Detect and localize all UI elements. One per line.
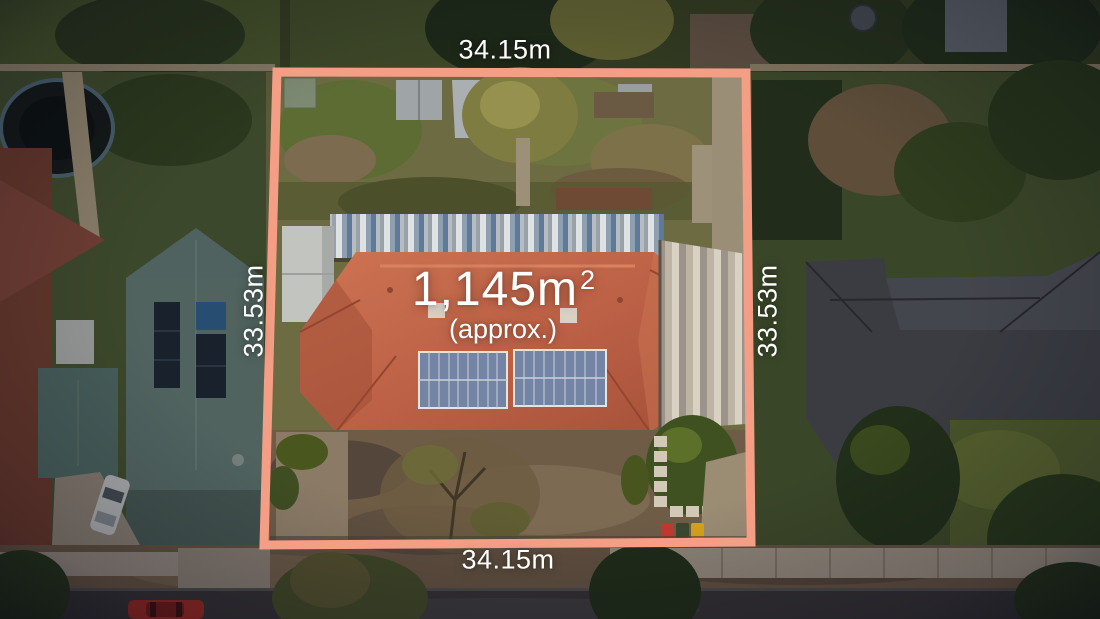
vignette [0, 0, 1100, 619]
aerial-photo-canvas: 34.15m 34.15m 33.53m 33.53m 1,145m2 (app… [0, 0, 1100, 619]
aerial-scene [0, 0, 1100, 619]
